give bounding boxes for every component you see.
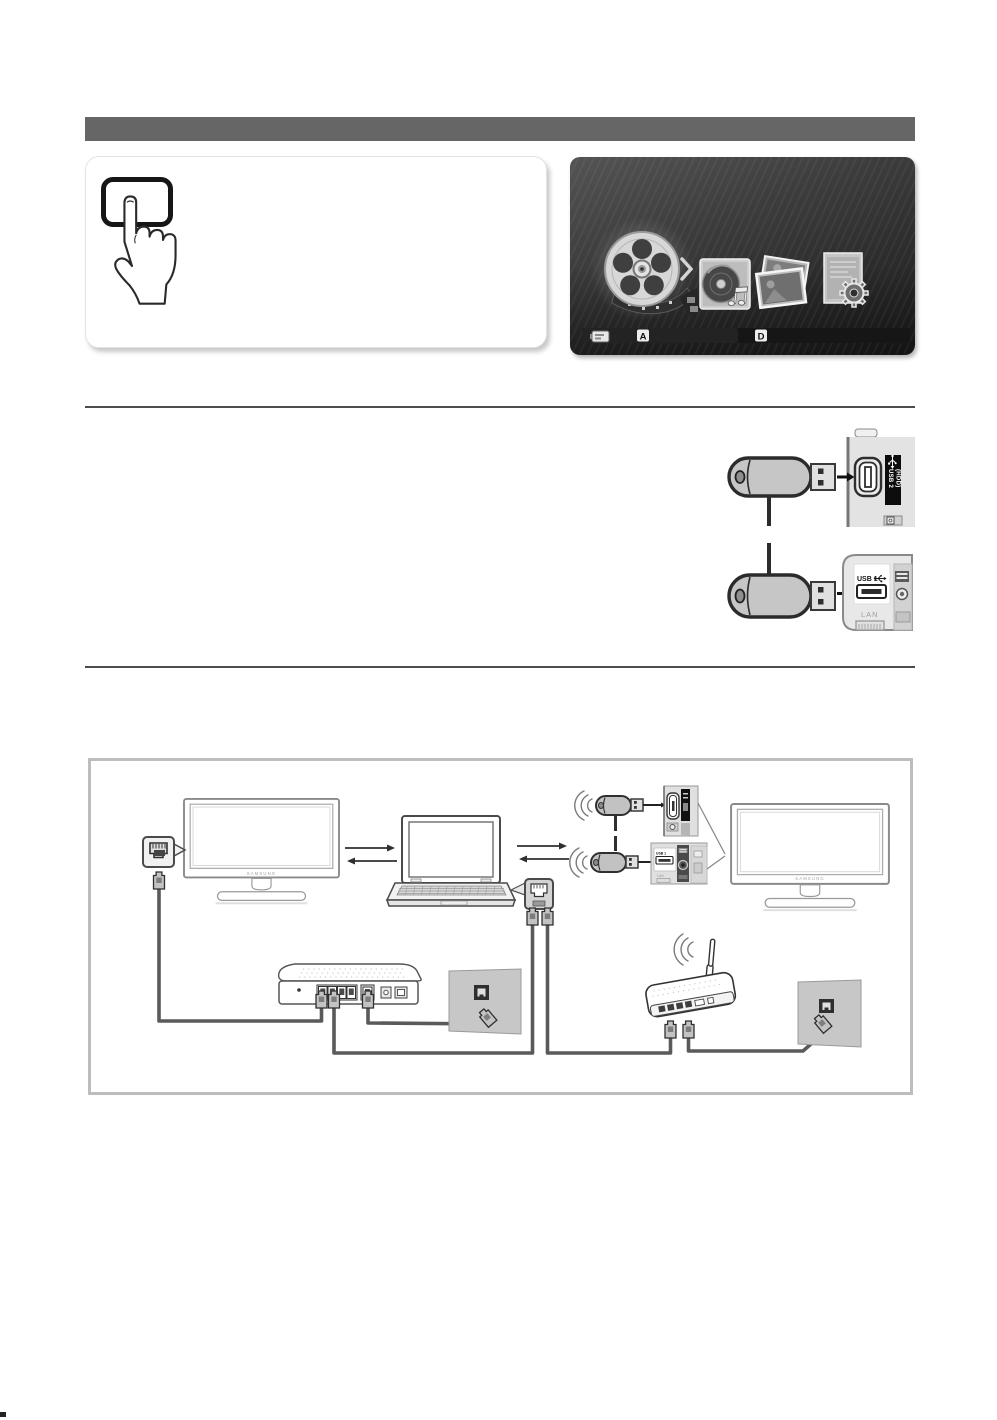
pressing-hand-icon xyxy=(106,193,194,318)
videos-film-reel-icon xyxy=(590,217,702,321)
adapter-alternative-line xyxy=(614,816,617,851)
mini-side-panel-usb2 xyxy=(664,786,698,836)
divider-line-bottom xyxy=(85,666,915,668)
badge-a-label: A xyxy=(640,331,647,342)
laptop-lan-callout xyxy=(511,879,553,925)
color-button-a-badge: A xyxy=(637,330,649,343)
lan-plug-icon xyxy=(665,1021,676,1038)
usb-connection-diagram: USB 2 (HDD) xyxy=(724,418,915,648)
right-tv xyxy=(731,804,889,910)
lan-port-label: LAN xyxy=(861,610,879,619)
laptop xyxy=(387,816,515,906)
wired-router xyxy=(279,964,422,1008)
bidirectional-arrows-left xyxy=(345,845,397,865)
color-button-d-badge: D xyxy=(755,330,767,343)
bidirectional-arrows-right xyxy=(517,843,569,863)
usb-flash-drive-bottom xyxy=(729,575,853,617)
settings-icon xyxy=(824,253,868,307)
lan-plug-icon xyxy=(154,872,165,889)
lan-plug-icon xyxy=(683,1021,694,1038)
network-diagram-box: SAMSUNG xyxy=(88,758,913,1095)
media-play-screen: A D xyxy=(570,157,915,355)
network-connection-diagram: SAMSUNG xyxy=(91,761,910,1092)
page-corner-mark xyxy=(0,1412,6,1417)
divider-line-top xyxy=(85,406,915,408)
section-header-bar xyxy=(85,117,915,141)
wireless-router xyxy=(645,934,737,1038)
manual-page: A D USB 2 xyxy=(0,0,997,1420)
gear-icon xyxy=(840,279,868,307)
antenna-upper xyxy=(708,939,715,966)
mini-lan-label: LAN xyxy=(657,874,664,878)
media-play-screen-graphics: A D xyxy=(570,157,915,355)
tv-back-panel-usb1: USB 1 LAN xyxy=(843,555,912,630)
left-tv-lan-callout xyxy=(143,837,185,889)
remote-instruction-panel xyxy=(85,156,547,348)
usb2-port-label-line1: USB 2 xyxy=(887,469,893,489)
wall-lan-outlet-left xyxy=(449,969,521,1034)
photos-icon xyxy=(756,256,808,308)
lan-plug-icon xyxy=(527,908,538,925)
wifi-signal-icon xyxy=(674,934,693,965)
usb-device-icon xyxy=(590,331,609,342)
wireless-lan-adapter-top xyxy=(575,791,666,820)
usb2-port-label-line2: (HDD) xyxy=(894,469,900,488)
mini-back-panel-usb1: USB 1 LAN xyxy=(651,843,707,884)
alternative-connector-line xyxy=(767,496,771,575)
usb-flash-drive-top xyxy=(729,458,855,496)
left-tv-logo: SAMSUNG xyxy=(247,871,277,876)
mini-usb1-label: USB 1 xyxy=(656,852,666,856)
left-tv xyxy=(184,799,339,903)
media-screen-bottom-bar: A D xyxy=(582,328,910,343)
lan-plug-icon xyxy=(542,908,553,925)
music-disc-icon xyxy=(700,259,750,309)
badge-d-label: D xyxy=(758,331,765,342)
tv-side-panel-usb2: USB 2 (HDD) xyxy=(848,429,915,527)
wireless-lan-adapter-bottom xyxy=(570,848,656,877)
right-tv-logo: SAMSUNG xyxy=(795,876,825,881)
wall-lan-outlet-right xyxy=(798,980,861,1047)
